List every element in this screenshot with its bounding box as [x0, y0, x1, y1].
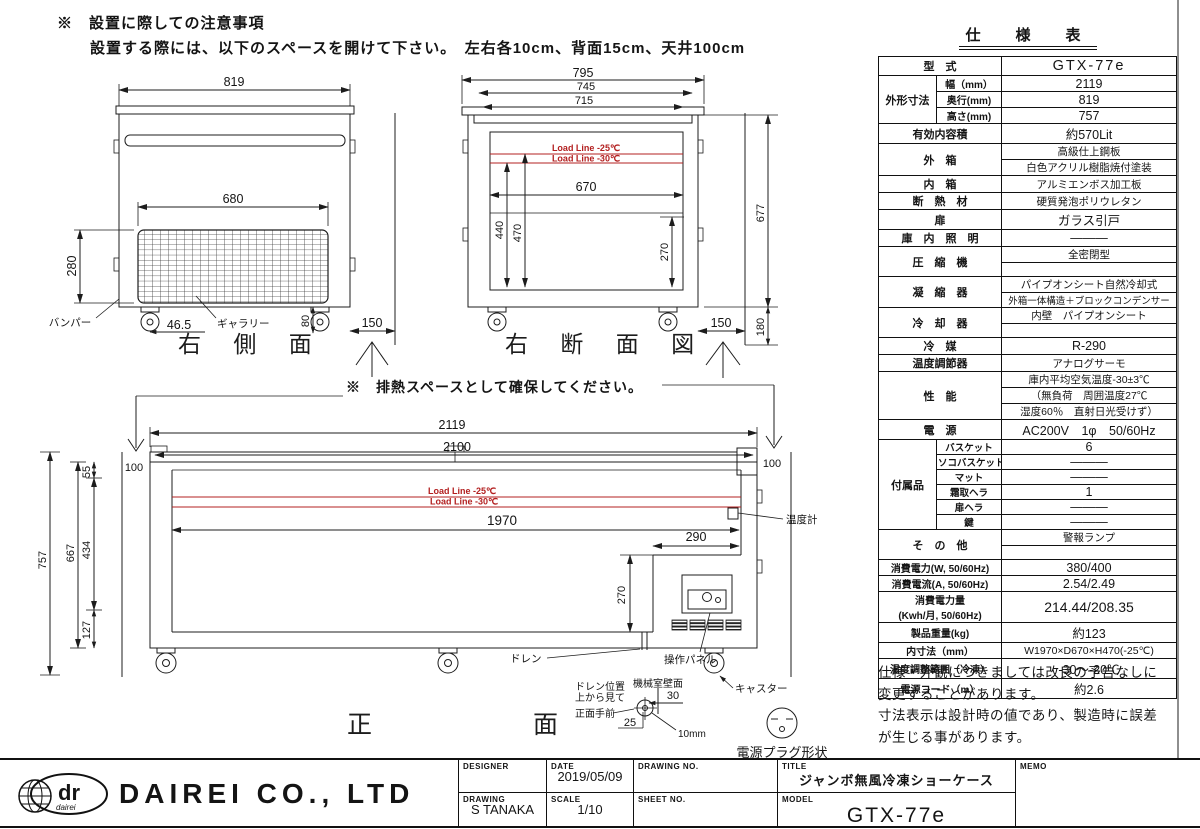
side-label-gallery: ギャラリー [217, 318, 270, 330]
drawing-sheet: 819 680 280 バンパー [0, 0, 1200, 829]
spec-power-label: 電 源 [879, 420, 1002, 440]
logo-dairei-text: dairei [56, 803, 76, 812]
spec-condenser-value1: パイプオンシート自然冷却式 [1002, 277, 1177, 293]
spec-power-w-value: 380/400 [1002, 560, 1177, 576]
title-cell: TITLE ジャンボ無風冷凍ショーケース [777, 760, 1015, 793]
spec-exterior-value1: 高級仕上鋼板 [1002, 144, 1177, 160]
front-dim-100-right: 100 [763, 458, 781, 470]
spec-compressor-value2 [1002, 263, 1177, 277]
spec-door-spatula-label: 扉ヘラ [937, 500, 1002, 515]
spec-depth-label: 奥行(mm) [937, 92, 1002, 108]
spec-table: 型 式GTX-77e 外形寸法幅（mm）2119 奥行(mm)819 高さ(mm… [878, 56, 1177, 699]
spec-cooler-value: 内壁 パイプオンシート [1002, 308, 1177, 324]
section-view-drawing: 795 745 715 Load Line -25℃ Load Line -30… [462, 66, 778, 378]
front-dim-127: 127 [81, 621, 93, 639]
date-value: 2019/05/09 [547, 769, 633, 784]
spec-energy-label1: 消費電力量 [880, 592, 1000, 607]
drawing-no-label: DRAWING NO. [634, 760, 777, 771]
front-load-line-25: Load Line -25℃ [428, 486, 496, 496]
sect-dim-440: 440 [494, 221, 506, 239]
front-dim-667: 667 [65, 544, 77, 562]
disclaimer-text: 仕様・外観につきましては改良の予告なしに 変更することがあります。 寸法表示は設… [878, 662, 1178, 748]
disclaimer-line1: 仕様・外観につきましては改良の予告なしに [878, 662, 1178, 684]
spec-performance-value3: 湿度60％ 直射日光受けず） [1002, 404, 1177, 420]
drawing-cell: DRAWING S TANAKA [458, 793, 546, 828]
disclaimer-line4: が生じる事があります。 [878, 727, 1178, 749]
sect-dim-795: 795 [573, 66, 594, 80]
spec-table-title-wrap: 仕 様 表 [878, 24, 1178, 50]
spec-energy-label2: (Kwh/月, 50/60Hz) [880, 607, 1000, 622]
spec-height-value: 757 [1002, 108, 1177, 124]
spec-mat-value: ——— [1002, 470, 1177, 485]
front-dim-2119: 2119 [439, 418, 466, 432]
spec-inner-label: 内寸法（mm） [879, 643, 1002, 659]
spec-mat-label: マット [937, 470, 1002, 485]
side-view-drawing: 819 680 280 バンパー [49, 75, 395, 378]
spec-cooler-label: 冷 却 器 [879, 308, 1002, 338]
logo-dr-text: dr [58, 780, 80, 805]
caution-note-title: ※ 設置に際しての注意事項 [57, 12, 265, 33]
front-view-drawing: 2119 2100 100 100 Load [37, 418, 828, 760]
spec-width-value: 2119 [1002, 76, 1177, 92]
memo-label: MEMO [1016, 760, 1200, 771]
sect-dim-670: 670 [576, 180, 597, 194]
title-value: ジャンボ無風冷凍ショーケース [778, 770, 1015, 789]
spec-dims-label: 外形寸法 [879, 76, 937, 124]
spec-interior-label: 内 箱 [879, 176, 1002, 193]
spec-other-value: 警報ランプ [1002, 530, 1177, 546]
spec-basket-label: バスケット [937, 440, 1002, 455]
sect-dim-677: 677 [755, 204, 767, 222]
spec-frost-value: 1 [1002, 485, 1177, 500]
company-name: DAIREI CO., LTD [119, 778, 414, 810]
front-dim-55: 55 [81, 466, 93, 478]
heat-space-note: ※ 排熱スペースとして確保してください。 [344, 377, 645, 397]
spec-refrigerant-label: 冷 媒 [879, 338, 1002, 355]
spec-basket-value: 6 [1002, 440, 1177, 455]
spec-power-value: AC200V 1φ 50/60Hz [1002, 420, 1177, 440]
front-label-drain: ドレン [510, 653, 542, 665]
side-dim-150: 150 [362, 316, 383, 330]
spec-key-value: ——— [1002, 515, 1177, 530]
spec-refrigerant-value: R-290 [1002, 338, 1177, 355]
spec-current-label: 消費電流(A, 50/60Hz) [879, 576, 1002, 592]
spec-light-label: 庫 内 照 明 [879, 230, 1002, 247]
spec-accessories-label: 付属品 [879, 440, 937, 530]
side-dim-680: 680 [223, 192, 244, 206]
spec-interior-value: アルミエンボス加工板 [1002, 176, 1177, 193]
spec-door-spatula-value: ——— [1002, 500, 1177, 515]
spec-table-section: 仕 様 表 型 式GTX-77e 外形寸法幅（mm）2119 奥行(mm)819… [878, 24, 1178, 699]
front-dim-434: 434 [81, 541, 93, 559]
spec-capacity-label: 有効内容積 [879, 124, 1002, 144]
spec-inner-value: W1970×D670×H470(-25℃) [1002, 643, 1177, 659]
spec-frost-label: 霜取ヘラ [937, 485, 1002, 500]
spec-door-value: ガラス引戸 [1002, 210, 1177, 230]
section-view-title: 右 断 面 図 [505, 331, 707, 357]
spec-model-label: 型 式 [879, 57, 1002, 76]
sheet-no-label: SHEET NO. [634, 793, 777, 804]
front-dim-290: 290 [686, 530, 707, 544]
spec-width-label: 幅（mm） [937, 76, 1002, 92]
front-dim-1970: 1970 [487, 513, 517, 528]
spec-energy-label: 消費電力量(Kwh/月, 50/60Hz) [879, 592, 1002, 623]
model-value: GTX-77e [778, 804, 1015, 828]
sect-dim-150: 150 [711, 316, 732, 330]
spec-condenser-value2: 外箱一体構造＋ブロックコンデンサー [1002, 293, 1177, 308]
spec-thermostat-value: アナログサーモ [1002, 355, 1177, 372]
front-load-line-30: Load Line -30℃ [430, 497, 498, 507]
spec-power-w-label: 消費電力(W, 50/60Hz) [879, 560, 1002, 576]
front-view-title: 正 面 [347, 711, 626, 739]
spec-condenser-label: 凝 縮 器 [879, 277, 1002, 308]
memo-cell: MEMO [1015, 760, 1200, 828]
side-view-title: 右 側 面 [178, 331, 325, 357]
spec-bottom-basket-value: ——— [1002, 455, 1177, 470]
spec-weight-label: 製品重量(kg) [879, 623, 1002, 643]
spec-performance-label: 性 能 [879, 372, 1002, 420]
company-cell: dr dairei DAIREI CO., LTD [0, 760, 458, 828]
spec-depth-value: 819 [1002, 92, 1177, 108]
sect-load-line-30: Load Line -30℃ [552, 154, 620, 164]
spec-insulation-value: 硬質発泡ポリウレタン [1002, 193, 1177, 210]
dairei-logo-icon: dr dairei [14, 771, 109, 817]
spec-compressor-label: 圧 縮 機 [879, 247, 1002, 277]
spec-current-value: 2.54/2.49 [1002, 576, 1177, 592]
spec-other-label: そ の 他 [879, 530, 1002, 560]
sheet-no-cell: SHEET NO. [633, 793, 777, 828]
spec-energy-value: 214.44/208.35 [1002, 592, 1177, 623]
spec-light-value: ——— [1002, 230, 1177, 247]
model-label: MODEL [778, 793, 1015, 804]
sect-dim-270: 270 [659, 243, 671, 261]
sect-dim-745: 745 [577, 81, 595, 93]
spec-table-title: 仕 様 表 [959, 24, 1096, 50]
spec-thermostat-label: 温度調節器 [879, 355, 1002, 372]
sect-dim-470: 470 [512, 224, 524, 242]
spec-insulation-label: 断 熱 材 [879, 193, 1002, 210]
front-label-drain-pos2: 上から見て [575, 692, 625, 704]
front-dim-270: 270 [616, 586, 628, 604]
spec-weight-value: 約123 [1002, 623, 1177, 643]
drawing-no-cell: DRAWING NO. [633, 760, 777, 793]
sect-dim-715: 715 [575, 95, 593, 107]
scale-value: 1/10 [547, 802, 633, 817]
title-block: dr dairei DAIREI CO., LTD DESIGNER DATE … [0, 758, 1200, 828]
disclaimer-line2: 変更することがあります。 [878, 684, 1178, 706]
side-dim-819: 819 [224, 75, 245, 89]
spec-model-value: GTX-77e [1002, 57, 1177, 76]
side-label-bumper: バンパー [49, 317, 92, 329]
designer-label: DESIGNER [459, 760, 546, 771]
spec-key-label: 鍵 [937, 515, 1002, 530]
drawing-value: S TANAKA [459, 802, 546, 817]
model-cell: MODEL GTX-77e [777, 793, 1015, 828]
spec-cooler-value2 [1002, 324, 1177, 338]
sect-load-line-25: Load Line -25℃ [552, 143, 620, 153]
spec-height-label: 高さ(mm) [937, 108, 1002, 124]
spec-performance-value1: 庫内平均空気温度-30±3℃ [1002, 372, 1177, 388]
side-dim-280: 280 [65, 256, 79, 277]
scale-cell: SCALE 1/10 [546, 793, 633, 828]
front-label-thermometer: 温度計 [786, 513, 818, 526]
spec-other-value2 [1002, 546, 1177, 560]
sect-dim-180: 180 [755, 318, 767, 336]
front-label-caster: キャスター [735, 683, 788, 695]
side-dim-80: 80 [300, 315, 312, 327]
spec-performance-value2: （無負荷 周囲温度27℃ [1002, 388, 1177, 404]
spec-bottom-basket-label: ソコバスケット [937, 455, 1002, 470]
spec-exterior-label: 外 箱 [879, 144, 1002, 176]
disclaimer-line3: 寸法表示は設計時の値であり、製造時に誤差 [878, 705, 1178, 727]
date-cell: DATE 2019/05/09 [546, 760, 633, 793]
front-dim-100-left: 100 [125, 462, 143, 474]
spec-exterior-value2: 白色アクリル樹脂焼付塗装 [1002, 160, 1177, 176]
designer-cell: DESIGNER [458, 760, 546, 793]
spec-compressor-value: 全密閉型 [1002, 247, 1177, 263]
front-dim-30: 30 [667, 690, 679, 702]
front-label-drain-pos1: ドレン位置 [575, 680, 625, 693]
spec-capacity-value: 約570Lit [1002, 124, 1177, 144]
caution-note-body: 設置する際には、以下のスペースを開けて下さい。 左右各10cm、背面15cm、天… [90, 37, 745, 58]
spec-door-label: 扉 [879, 210, 1002, 230]
front-dim-10mm: 10mm [678, 729, 706, 740]
front-dim-757: 757 [37, 551, 49, 569]
side-dim-46-5: 46.5 [167, 318, 191, 332]
